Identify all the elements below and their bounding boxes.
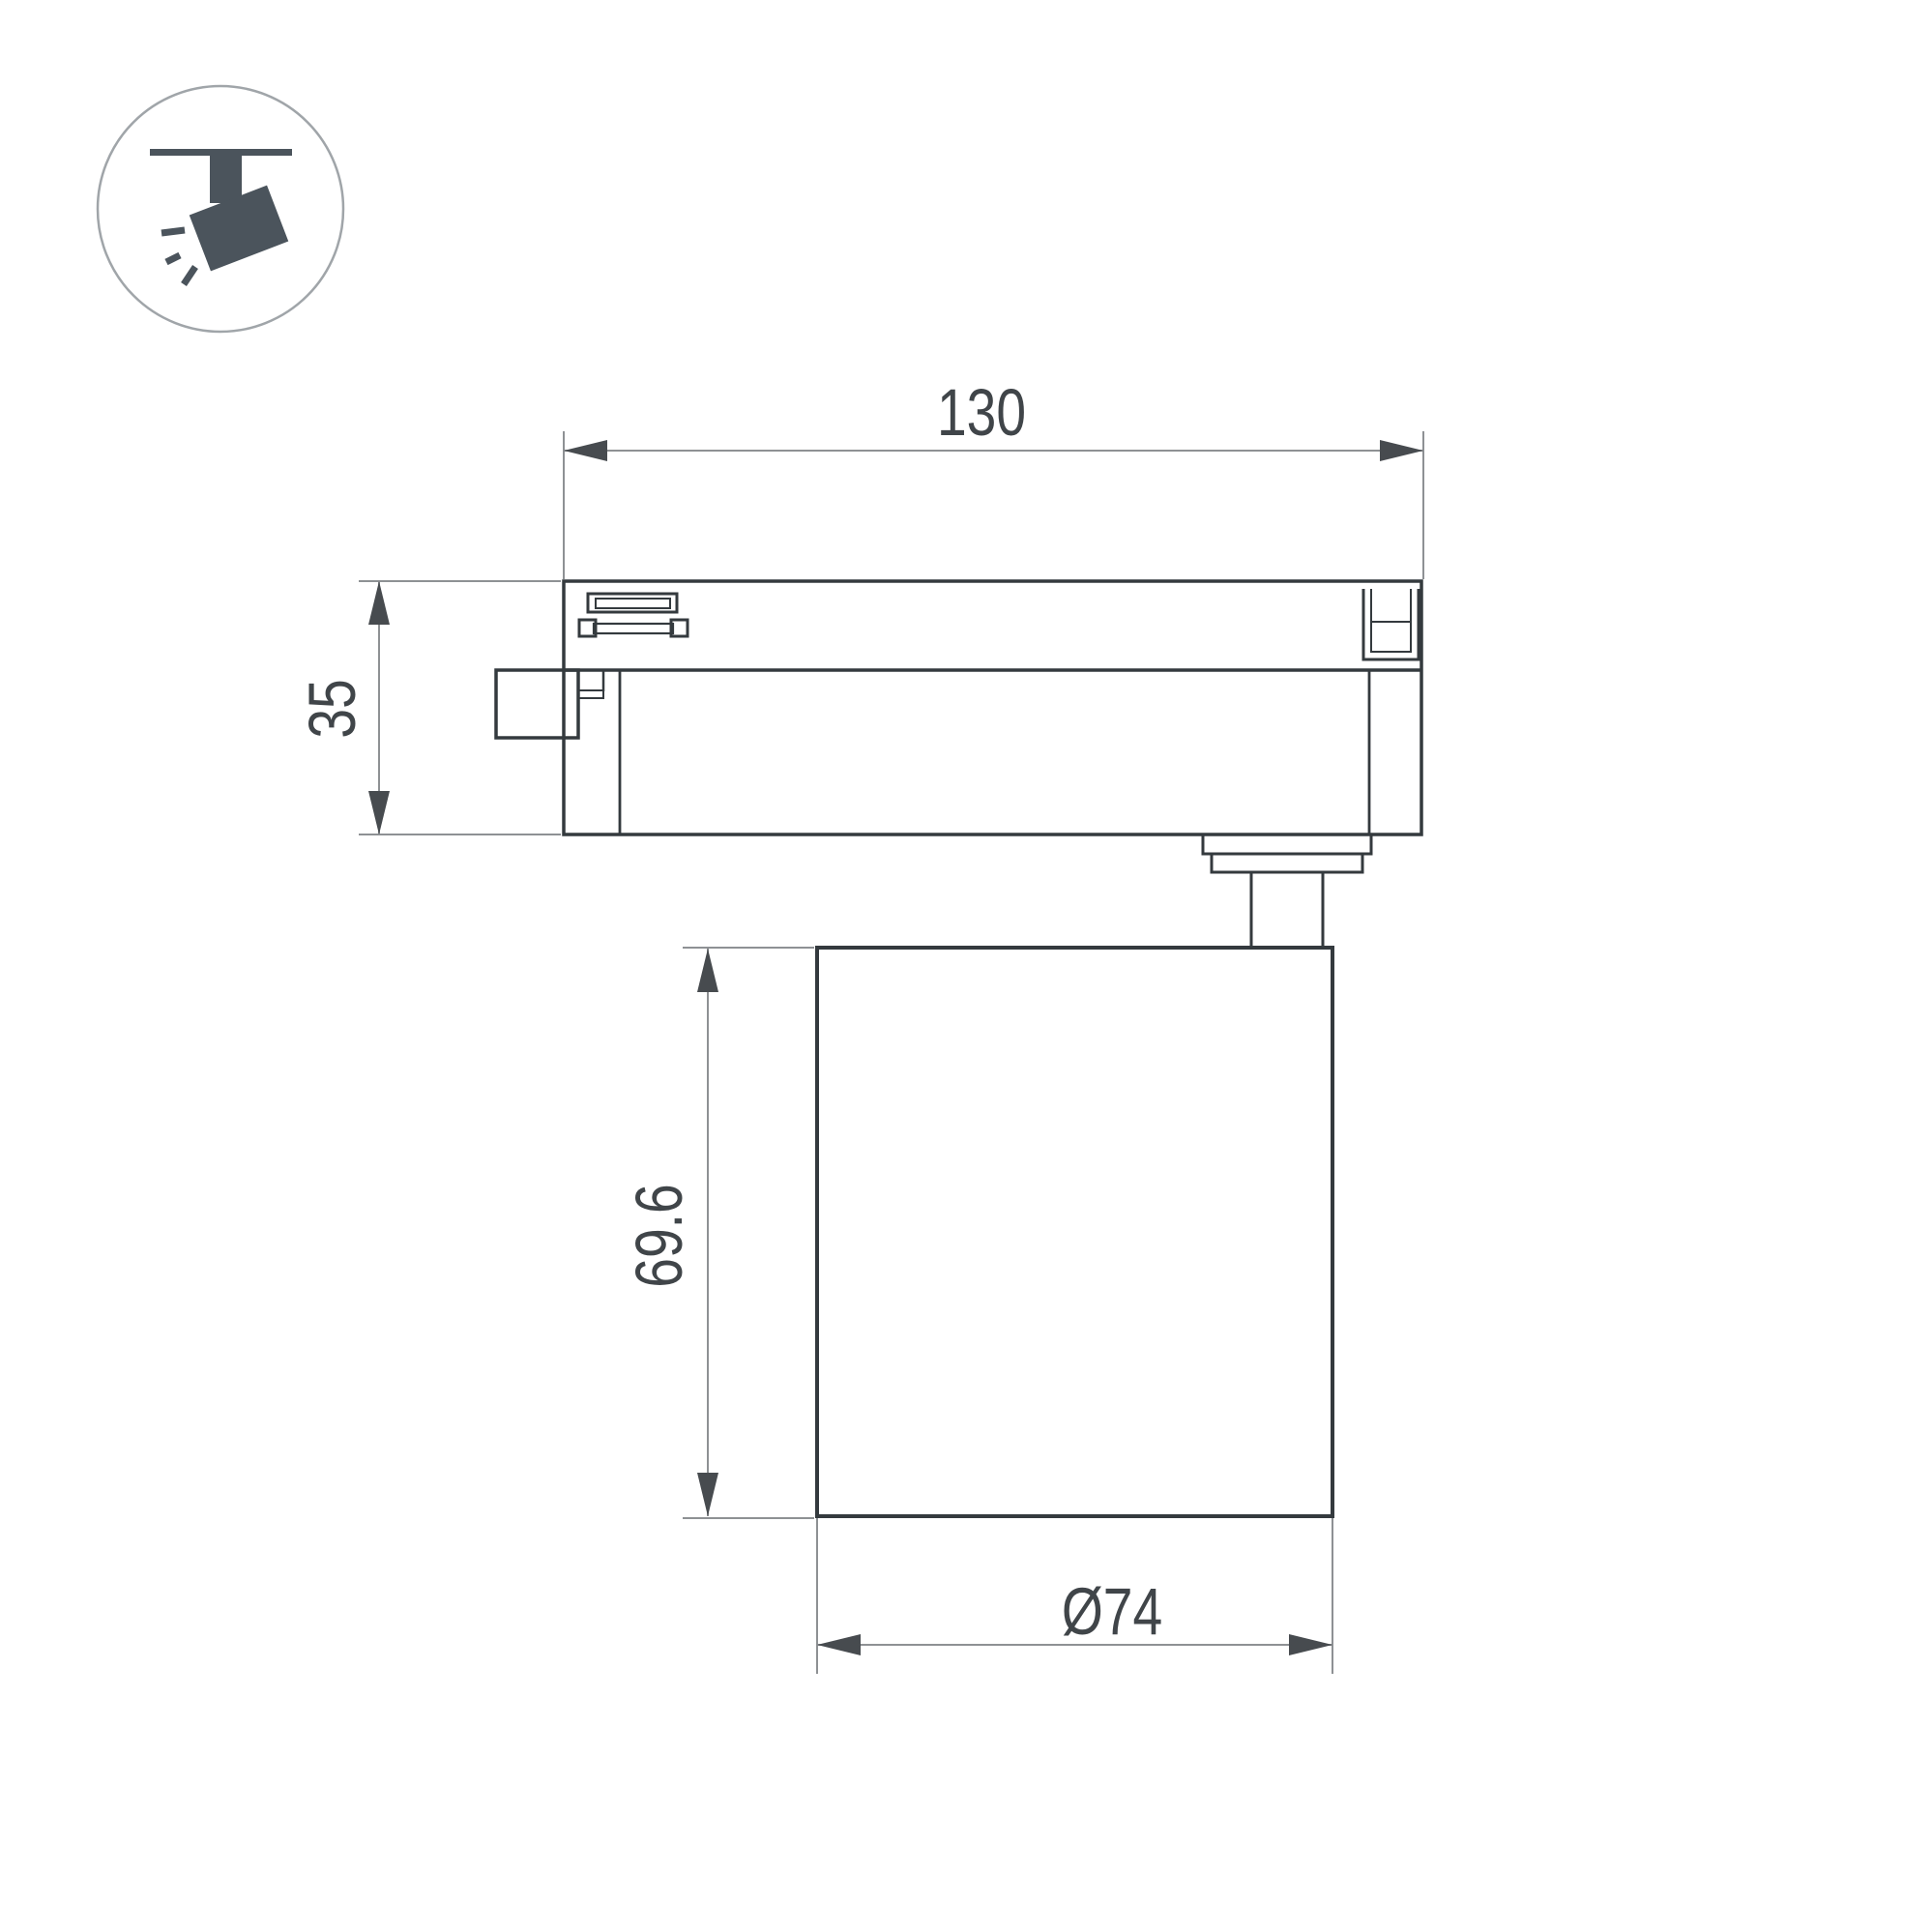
arrow-130-right [1380,440,1423,461]
dimension-lines-group [359,431,1423,1674]
arrow-35-down [368,791,390,834]
dim-label-head-diameter: Ø74 [1062,1574,1162,1649]
latch-foot-bar [578,690,603,698]
dim-label-overall-width: 130 [937,375,1026,450]
arrow-74-left [817,1634,861,1655]
track-adapter-body-outline [564,581,1421,834]
dimension-arrows-group [368,440,1423,1655]
contact-clip-lower-bar [594,624,673,633]
icon-mount-stem [210,153,242,203]
drawing-canvas: 130 35 69.6 Ø74 [0,0,1932,1932]
dim-label-adapter-height: 35 [295,679,369,738]
contact-clip-upper-outer [588,594,677,612]
swivel-flange-upper [1203,834,1371,854]
dim-label-head-height: 69.6 [622,1184,696,1287]
lamp-head-outline [817,948,1332,1516]
arrow-130-left [564,440,607,461]
arrow-696-up [697,949,718,992]
end-clip-inner [1371,589,1411,652]
swivel-neck [1251,872,1323,948]
arrow-696-down [697,1473,718,1516]
dimension-labels-group: 130 35 69.6 Ø74 [295,375,1162,1649]
arrow-74-right [1289,1634,1332,1655]
track-spotlight-icon [98,86,343,332]
contact-clip-upper-inner [596,599,670,608]
release-lever-box [496,670,578,738]
swivel-flange-lower [1212,854,1362,872]
product-outline-group [496,581,1421,1516]
arrow-35-up [368,581,390,625]
